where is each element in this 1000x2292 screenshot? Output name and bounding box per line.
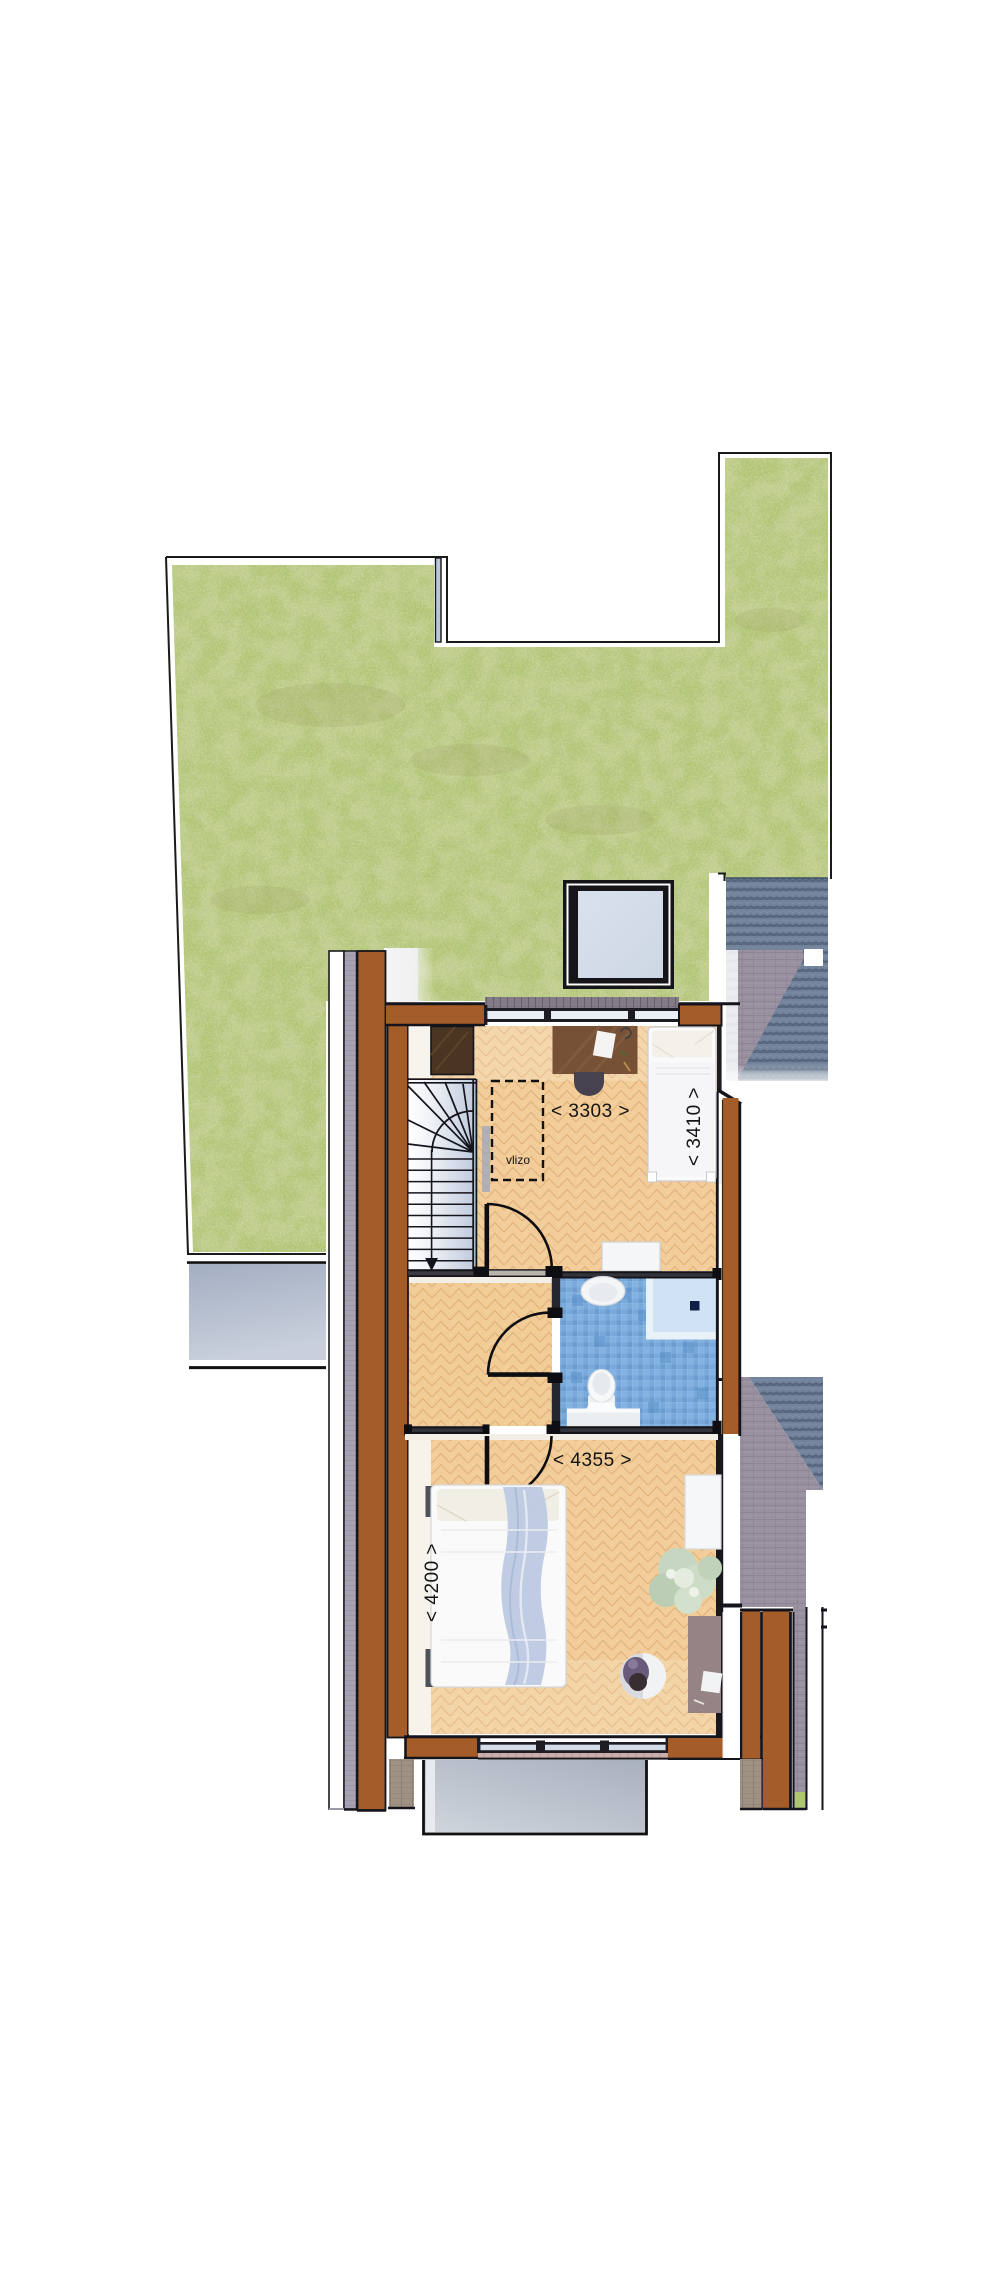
svg-text:vlizo: vlizo	[506, 1153, 530, 1167]
svg-text:< 4200 >: < 4200 >	[422, 1543, 443, 1622]
svg-text:< 4355 >: < 4355 >	[553, 1450, 632, 1471]
svg-text:< 3303 >: < 3303 >	[551, 1101, 630, 1122]
svg-text:< 3410 >: < 3410 >	[684, 1087, 705, 1166]
